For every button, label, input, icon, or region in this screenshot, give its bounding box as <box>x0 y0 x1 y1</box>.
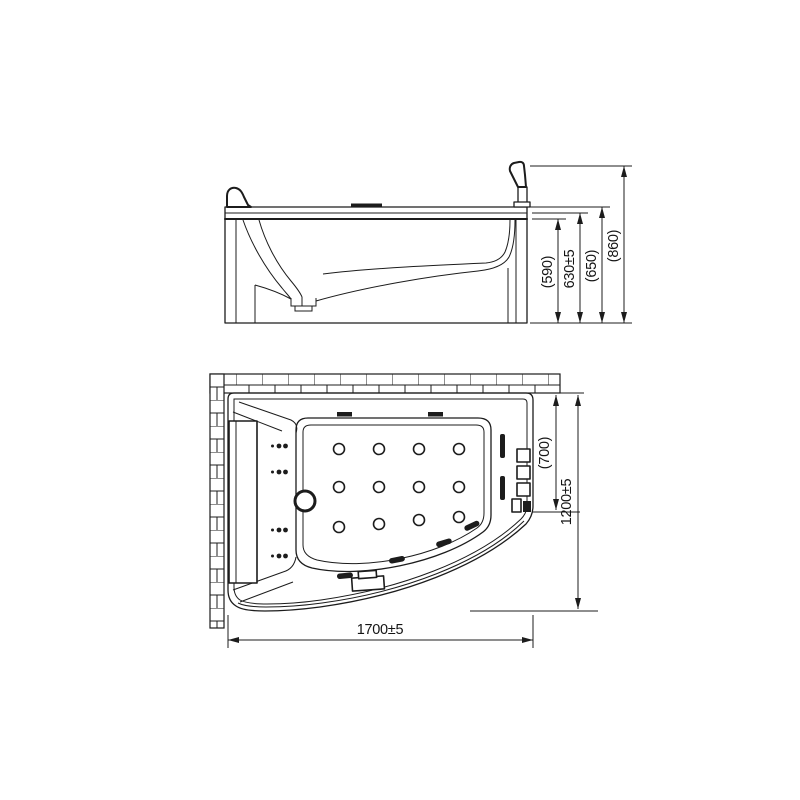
floor-jets <box>334 444 465 533</box>
faucet-elevation <box>510 162 530 207</box>
overflow-step <box>358 570 376 578</box>
top-wall-jet <box>428 412 443 417</box>
jet <box>454 512 465 523</box>
tub-elevation-body <box>225 162 530 323</box>
shell-bottom-right <box>316 220 515 301</box>
jet <box>414 444 425 455</box>
dim-label-rim-height: 630±5 <box>562 249 578 288</box>
side-jet-bar <box>500 434 505 458</box>
drain-fitting <box>295 306 312 311</box>
spout-fixture-outline <box>512 499 521 512</box>
spout-fixture-solid <box>523 501 531 512</box>
headrest-plan <box>229 421 257 583</box>
jet <box>374 519 385 530</box>
front-jet <box>337 572 353 579</box>
control-button <box>517 449 530 462</box>
drain-circle <box>295 491 315 511</box>
front-jet <box>389 556 406 564</box>
overflow-fitting <box>351 570 384 591</box>
deck-plate <box>351 204 382 208</box>
jet <box>414 515 425 526</box>
drawing-sheet: (590) 630±5 (650) (860) <box>0 0 800 800</box>
dim-label-inner-depth: (590) <box>540 256 556 288</box>
dim-label-overall-width: 1200±5 <box>559 479 575 526</box>
side-view: (590) 630±5 (650) (860) <box>225 162 632 323</box>
side-jet-bar <box>500 476 505 500</box>
control-button <box>517 483 530 496</box>
bathtub-technical-drawing: (590) 630±5 (650) (860) <box>0 0 800 800</box>
front-jets <box>337 520 481 579</box>
jet <box>414 482 425 493</box>
jet <box>374 444 385 455</box>
wall-hatch-left <box>210 374 224 628</box>
tub-plan <box>228 393 533 611</box>
jet <box>454 444 465 455</box>
tub-outline <box>225 207 527 323</box>
plan-view: (700) 1200±5 1700±5 <box>210 374 598 648</box>
basin-rim-outer <box>296 418 491 571</box>
headrest-pad <box>229 421 257 583</box>
seat-line <box>323 220 510 274</box>
control-panel <box>512 449 531 512</box>
backrest-curve-outer <box>243 220 291 299</box>
dimensions-side: (590) 630±5 (650) (860) <box>530 166 632 323</box>
wall-hatch-top <box>210 374 560 393</box>
jet <box>334 482 345 493</box>
headrest-profile <box>227 188 251 207</box>
back-jets <box>271 444 288 559</box>
dim-label-overall-length: 1700±5 <box>357 622 404 638</box>
drain-sump <box>291 298 316 306</box>
jet <box>374 482 385 493</box>
jet <box>334 522 345 533</box>
faucet-base <box>514 202 530 207</box>
control-button <box>517 466 530 479</box>
dim-label-inner-width: (700) <box>537 437 553 469</box>
top-wall-jet <box>337 412 352 417</box>
backrest-curve-inner <box>259 220 302 306</box>
jet <box>334 444 345 455</box>
faucet-lever <box>510 162 526 187</box>
jet <box>454 482 465 493</box>
dim-label-deck-height: (650) <box>584 250 600 282</box>
front-jet <box>463 520 480 532</box>
dim-label-total-height: (860) <box>606 230 622 262</box>
